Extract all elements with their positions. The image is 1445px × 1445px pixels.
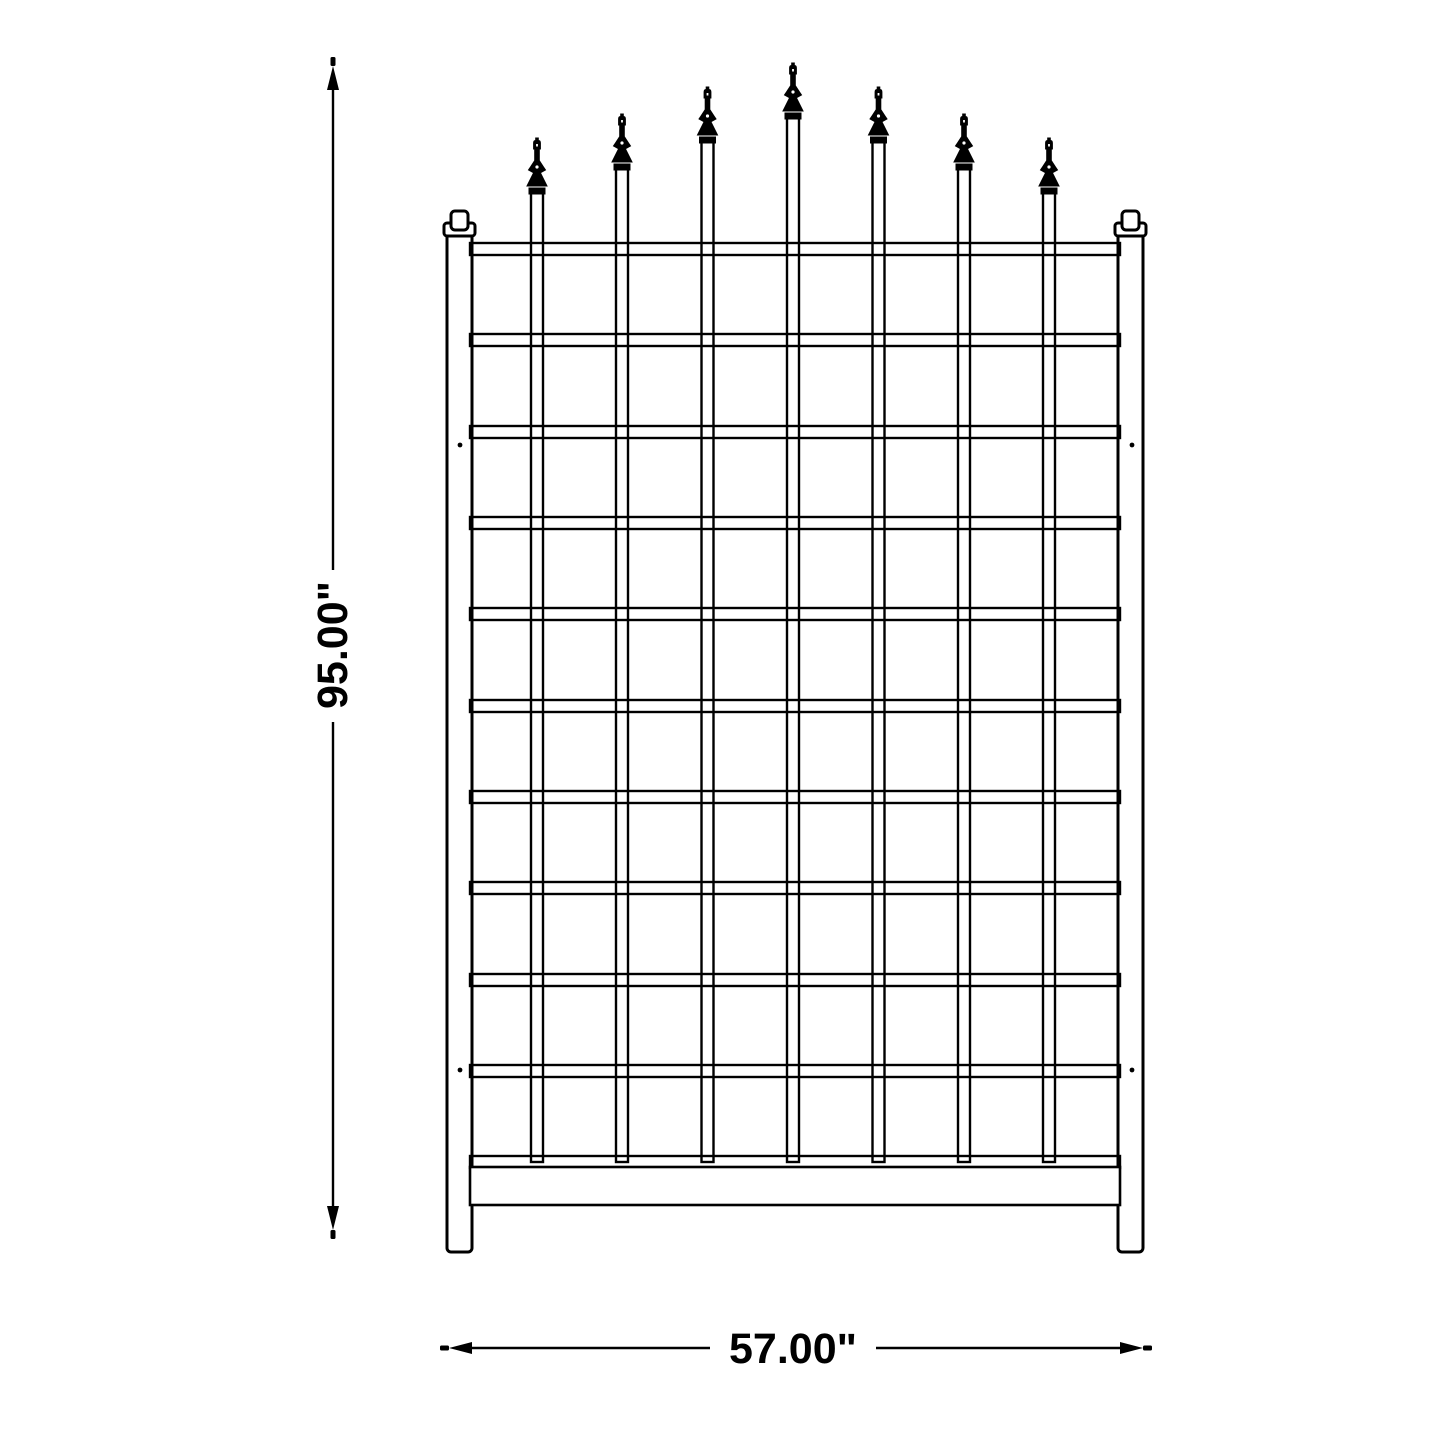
trellis-bar-4 [787,118,799,1162]
trellis-bar-2 [616,169,628,1162]
rail-3 [470,426,1120,438]
rail-2 [470,334,1120,346]
rail-5 [470,608,1120,620]
bottom-board [470,1167,1120,1205]
height-dim-arrow-down-icon [327,1206,339,1230]
trellis-dimension-diagram: 95.00" 57.00" [0,0,1445,1445]
trellis-bar-3 [702,142,714,1162]
screw-hole-3 [458,1068,463,1073]
rail-6 [470,700,1120,712]
left-post [447,233,472,1252]
trellis-structure [444,63,1146,1252]
height-dim-bottom-nub [331,1230,336,1239]
height-dimension: 95.00" [309,57,357,1239]
width-dim-right-nub [1143,1346,1152,1351]
height-dimension-label: 95.00" [309,581,357,709]
screw-hole-1 [458,443,463,448]
diagram-canvas: 95.00" 57.00" [0,0,1445,1445]
width-dimension-label: 57.00" [729,1325,857,1373]
trellis-bar-1 [531,193,543,1162]
width-dim-arrow-left-icon [449,1342,472,1354]
width-dim-arrow-right-icon [1120,1342,1143,1354]
width-dim-left-nub [440,1346,449,1351]
trellis-bar-6 [958,169,970,1162]
rail-7 [470,791,1120,803]
rail-1 [470,243,1120,255]
right-post-cap-top [1122,211,1139,230]
rail-8 [470,882,1120,894]
trellis-bar-5 [873,142,885,1162]
screw-hole-4 [1130,1068,1135,1073]
rail-9 [470,974,1120,986]
trellis-bar-7 [1043,193,1055,1162]
rail-4 [470,517,1120,529]
height-dim-arrow-up-icon [327,66,339,90]
width-dimension: 57.00" [440,1325,1152,1373]
right-post [1118,233,1143,1252]
screw-hole-2 [1130,443,1135,448]
left-post-cap-top [451,211,468,230]
rail-10 [470,1065,1120,1077]
height-dim-top-nub [331,57,336,66]
